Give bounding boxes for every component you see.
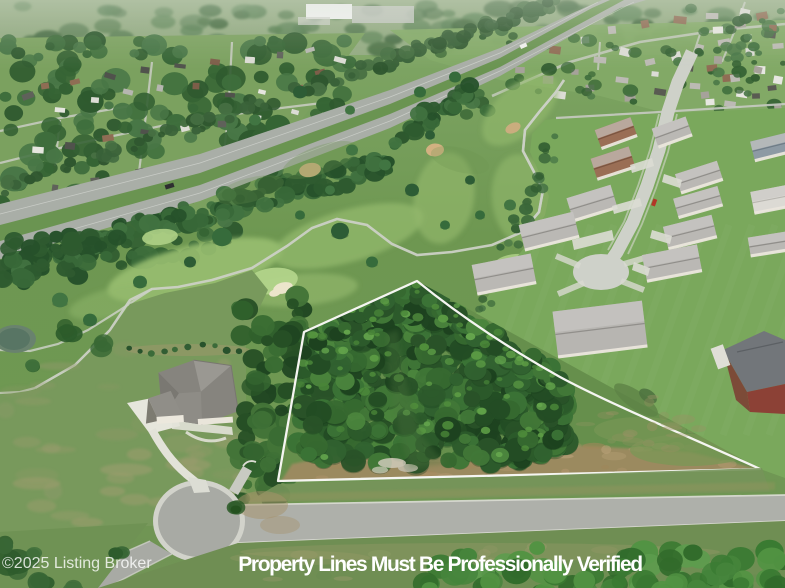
svg-text:Property Lines Must Be Profess: Property Lines Must Be Professionally Ve… [238, 553, 642, 576]
svg-text:©2025 Listing Broker: ©2025 Listing Broker [2, 555, 152, 572]
